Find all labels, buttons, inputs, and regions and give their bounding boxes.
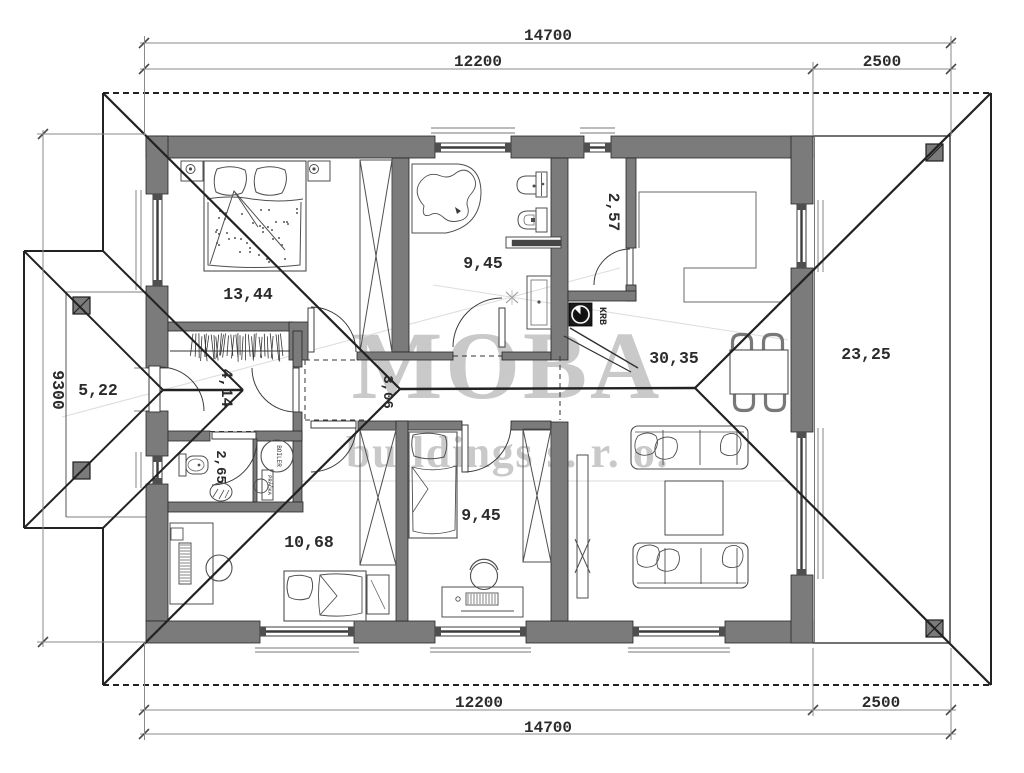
svg-text:2,65: 2,65 [212,450,228,484]
svg-text:13,44: 13,44 [223,285,273,304]
svg-text:10,68: 10,68 [284,533,334,552]
svg-text:2500: 2500 [863,53,901,71]
svg-text:PRÁČKA: PRÁČKA [266,475,273,496]
svg-text:3,06: 3,06 [379,375,395,409]
svg-text:9,45: 9,45 [461,506,501,525]
svg-text:12200: 12200 [454,53,502,71]
svg-text:14700: 14700 [524,719,572,737]
svg-text:30,35: 30,35 [649,349,699,368]
svg-text:14700: 14700 [524,27,572,45]
svg-text:9,45: 9,45 [463,254,503,273]
svg-text:2500: 2500 [862,694,900,712]
svg-text:23,25: 23,25 [841,345,891,364]
svg-text:2,57: 2,57 [604,193,622,231]
svg-text:12200: 12200 [455,694,503,712]
svg-text:BOILER: BOILER [275,445,282,467]
svg-text:4,14: 4,14 [217,369,235,408]
svg-text:5,22: 5,22 [78,381,118,400]
svg-text:KRB: KRB [596,307,607,325]
svg-text:9300: 9300 [48,370,67,410]
